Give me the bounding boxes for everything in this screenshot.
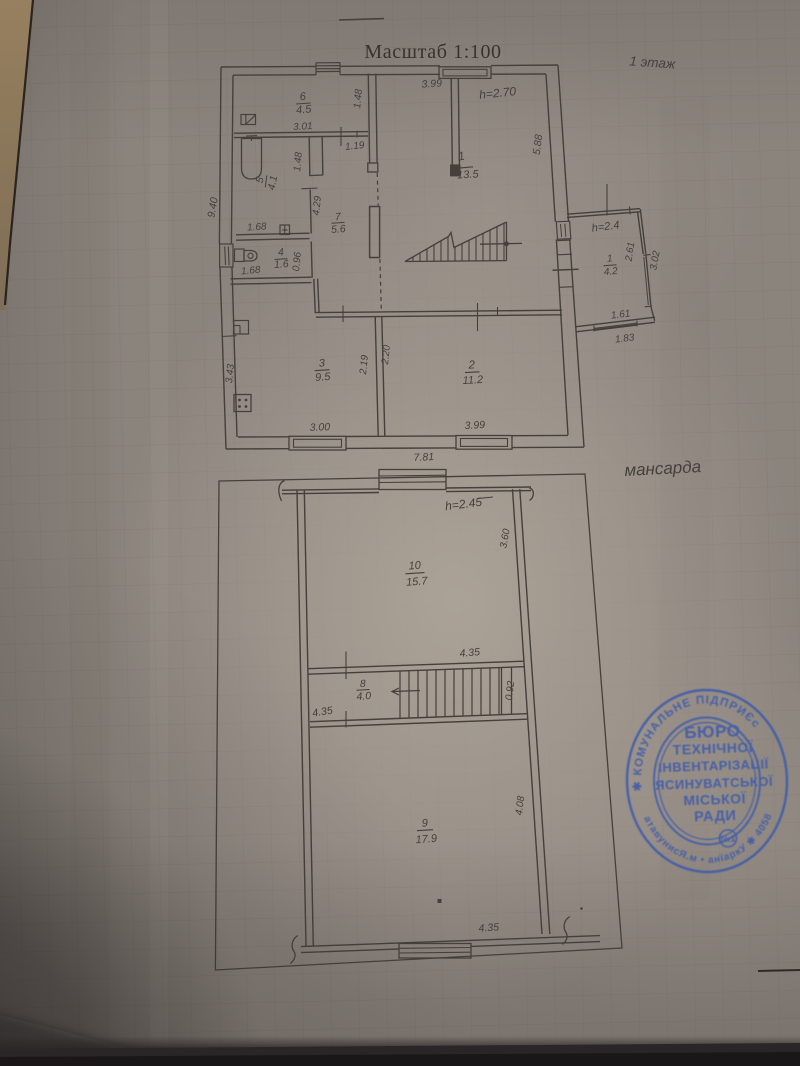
svg-text:5.88: 5.88: [531, 134, 545, 156]
svg-text:1.68: 1.68: [247, 221, 268, 233]
svg-text:ТЕХНІЧНОЇ: ТЕХНІЧНОЇ: [672, 739, 754, 758]
svg-text:1.48: 1.48: [292, 151, 305, 172]
svg-text:РАДИ: РАДИ: [694, 808, 737, 825]
svg-text:7.81: 7.81: [413, 451, 434, 464]
svg-text:1.48: 1.48: [352, 88, 365, 109]
svg-text:1.68: 1.68: [241, 265, 262, 278]
svg-text:№1: №1: [720, 834, 735, 845]
svg-text:1.6: 1.6: [274, 258, 290, 271]
svg-text:3.00: 3.00: [309, 421, 330, 434]
svg-text:4.5: 4.5: [296, 103, 313, 116]
svg-text:МІСЬКОЇ: МІСЬКОЇ: [683, 790, 747, 808]
svg-text:4.2: 4.2: [603, 266, 618, 278]
svg-text:3.99: 3.99: [464, 419, 485, 432]
svg-text:2: 2: [467, 359, 476, 371]
svg-text:11.2: 11.2: [462, 374, 483, 387]
svg-text:3.99: 3.99: [421, 77, 442, 90]
svg-text:мансарда: мансарда: [624, 457, 702, 480]
svg-text:4: 4: [277, 246, 284, 258]
svg-text:3.01: 3.01: [293, 121, 313, 133]
svg-text:1.19: 1.19: [344, 140, 365, 153]
svg-text:4.29: 4.29: [311, 195, 324, 216]
svg-text:5.6: 5.6: [331, 223, 347, 236]
svg-text:3.43: 3.43: [224, 363, 237, 384]
svg-text:2.19: 2.19: [358, 354, 371, 376]
svg-text:0.96: 0.96: [291, 251, 304, 272]
svg-text:2.20: 2.20: [380, 344, 393, 366]
svg-text:1.61: 1.61: [610, 308, 631, 321]
svg-text:1: 1: [607, 253, 614, 264]
svg-text:9.5: 9.5: [315, 371, 332, 384]
svg-text:Масштаб 1:100: Масштаб 1:100: [364, 41, 501, 63]
svg-text:13.5: 13.5: [457, 168, 480, 181]
